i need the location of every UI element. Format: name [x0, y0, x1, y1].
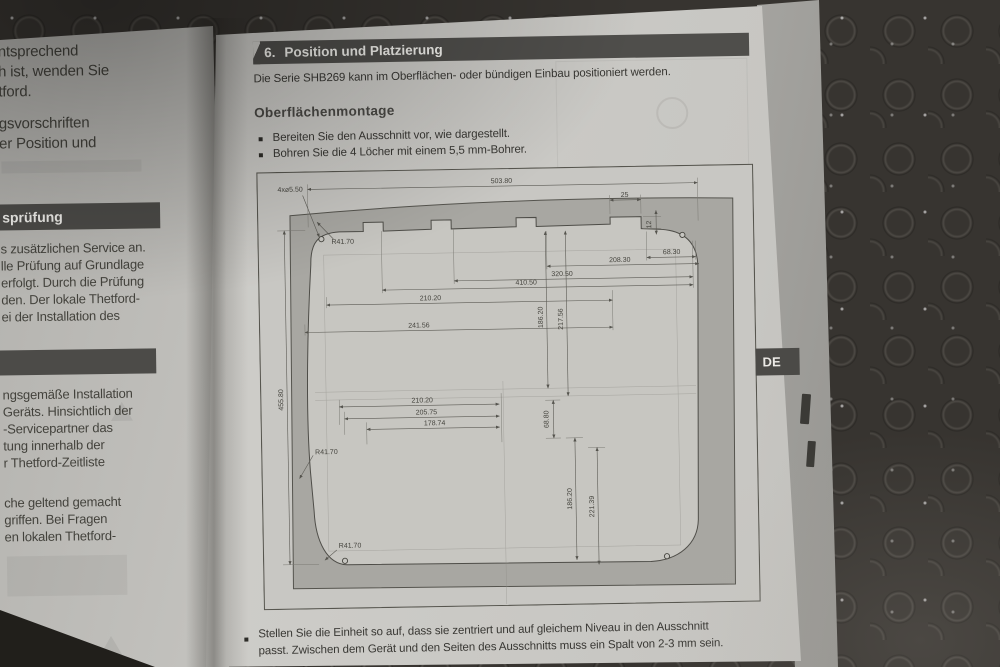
photo-of-manual: ntsprechend h ist, wenden Sie tford. gsv…: [0, 0, 1000, 667]
lighting-overlay: [0, 0, 1000, 667]
